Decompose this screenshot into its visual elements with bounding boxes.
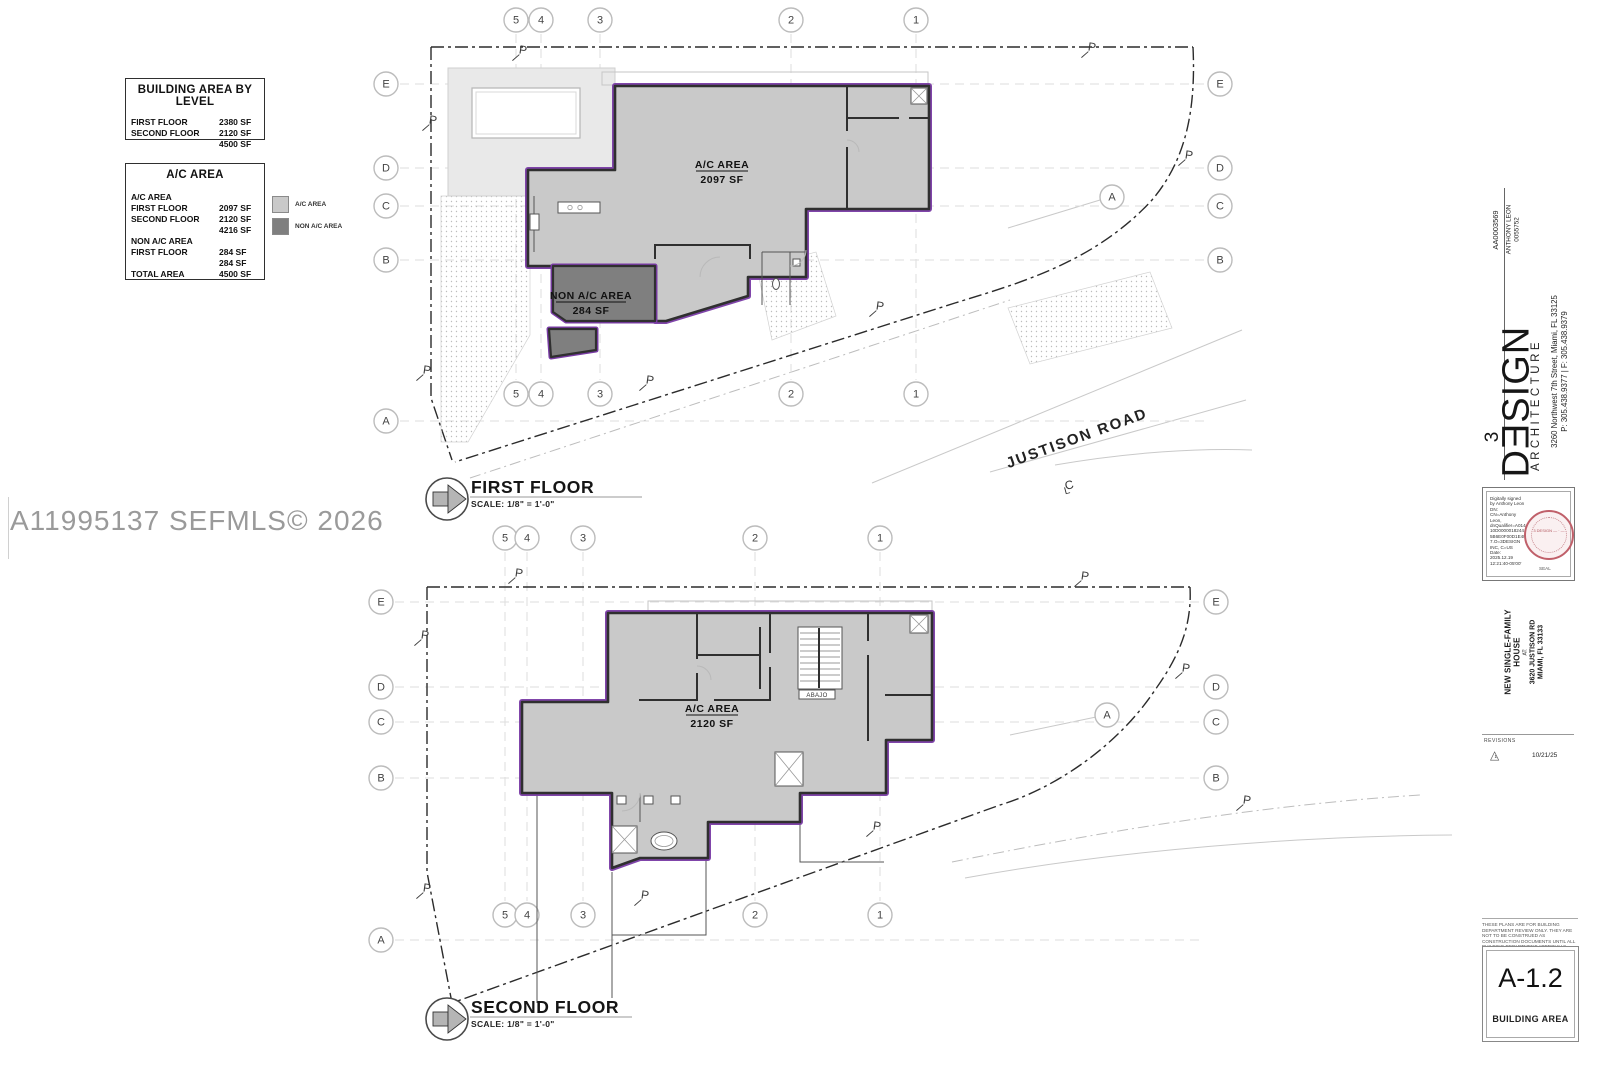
property-line-marker: P (508, 565, 524, 586)
grid-bubble-5: 5 (504, 8, 528, 32)
svg-text:C: C (1212, 717, 1220, 729)
svg-text:5: 5 (502, 533, 508, 545)
firm-license: AA0003569 (1491, 206, 1501, 254)
svg-text:4: 4 (538, 15, 544, 27)
non-ac-area-value: 284 SF (573, 305, 610, 317)
grid-bubble-1: 1 (868, 526, 892, 550)
legend-item: A/C AREA (272, 196, 342, 213)
edge-line (8, 497, 9, 559)
revisions-divider (1482, 734, 1574, 735)
grid-bubble-3: 3 (571, 903, 595, 927)
grid-bubble-D: D (1208, 156, 1232, 180)
firm-address: 3260 Northwest 7th Street, Miami, FL 331… (1550, 284, 1569, 459)
svg-text:P: P (1087, 40, 1097, 55)
area-legend: A/C AREA NON A/C AREA (272, 196, 342, 240)
property-line-marker: P (634, 887, 650, 908)
svg-text:4: 4 (524, 533, 530, 545)
svg-text:5: 5 (513, 15, 519, 27)
property-line-marker: P (1081, 39, 1097, 60)
grid-bubble-B: B (1208, 248, 1232, 272)
ac-area-table: A/C AREA A/C AREA FIRST FLOOR2097 SF SEC… (125, 163, 265, 280)
architect-name: ANTHONY LEON 0055752 (1506, 203, 1521, 257)
svg-text:A: A (1103, 710, 1111, 722)
property-line (427, 587, 452, 1003)
grid-bubble-D: D (1204, 675, 1228, 699)
view-title: FIRST FLOOR (471, 477, 594, 497)
svg-text:3: 3 (597, 15, 603, 27)
ac-area-swatch (272, 196, 289, 213)
svg-text:1: 1 (913, 15, 919, 27)
second-floor-plan: ABAJO A/C AREA 2120 SF (426, 587, 1190, 1040)
svg-text:E: E (377, 597, 384, 609)
second-floor-title: SECOND FLOOR SCALE: 1/8" = 1'-0" (426, 997, 632, 1040)
property-line-marker: P (639, 372, 655, 393)
svg-text:2: 2 (752, 910, 758, 922)
svg-text:P: P (1184, 148, 1194, 163)
grid-bubble-C: C (374, 194, 398, 218)
property-line-marker: P (1236, 792, 1252, 813)
property-line-marker: P (512, 42, 528, 63)
svg-text:5: 5 (513, 389, 519, 401)
grid-bubble-4: 4 (529, 382, 553, 406)
firm-logo-number: 3 (1482, 427, 1502, 447)
table-row: A/C AREA (126, 192, 264, 203)
grid-bubble-A: A (374, 409, 398, 433)
svg-text:3: 3 (580, 533, 586, 545)
revision-date: 10/21/25 (1532, 752, 1557, 759)
first-floor-title: FIRST FLOOR SCALE: 1/8" = 1'-0" (426, 477, 642, 520)
grid-bubble-E: E (1204, 590, 1228, 614)
grid-bubble-3: 3 (588, 382, 612, 406)
svg-text:P: P (1080, 569, 1090, 584)
table-row: 4216 SF (126, 225, 264, 236)
grid-bubble-D: D (374, 156, 398, 180)
property-line-marker: P (1175, 660, 1191, 681)
svg-text:P: P (422, 363, 432, 378)
grid-bubble-B: B (369, 766, 393, 790)
grid-bubble-C: C (369, 710, 393, 734)
grid-bubble-B: B (1204, 766, 1228, 790)
svg-text:P: P (1181, 661, 1191, 676)
grid-bubble-2: 2 (743, 903, 767, 927)
view-scale: SCALE: 1/8" = 1'-0" (471, 499, 555, 509)
svg-text:E: E (1216, 79, 1223, 91)
first-floor-plan: A/C AREA 2097 SF NON A/C AREA 284 SF JUS… (426, 47, 1194, 520)
grid-bubble-2: 2 (779, 382, 803, 406)
grid-bubble-C: C (1204, 710, 1228, 734)
watermark: A11995137 SEFMLS© 2026 (10, 505, 384, 537)
grid-bubble-B: B (374, 248, 398, 272)
table-row: FIRST FLOOR284 SF (126, 247, 264, 258)
svg-text:P: P (420, 628, 430, 643)
grid-bubble-2: 2 (779, 8, 803, 32)
ac-area-value: 2120 SF (690, 718, 733, 730)
grid-bubble-A: A (369, 928, 393, 952)
svg-text:C: C (1216, 201, 1224, 213)
building-area-table: BUILDING AREA BY LEVEL FIRST FLOOR2380 S… (125, 78, 265, 140)
stair-label: ABAJO (806, 693, 827, 699)
svg-text:P: P (1242, 793, 1252, 808)
table-row: SECOND FLOOR2120 SF (126, 214, 264, 225)
svg-text:E: E (382, 79, 389, 91)
grid-bubble-4: 4 (515, 903, 539, 927)
svg-text:D: D (1216, 163, 1224, 175)
non-ac-area-swatch (272, 218, 289, 235)
svg-text:B: B (1216, 255, 1223, 267)
table-title: BUILDING AREA BY LEVEL (126, 84, 264, 108)
ac-area-value: 2097 SF (700, 174, 743, 186)
svg-text:1: 1 (913, 389, 919, 401)
grid-bubble-D: D (369, 675, 393, 699)
svg-text:D: D (377, 682, 385, 694)
revisions-label: REVISIONS (1484, 738, 1516, 744)
svg-text:P: P (872, 819, 882, 834)
svg-text:D: D (382, 163, 390, 175)
svg-text:P: P (518, 43, 528, 58)
ac-area-label: A/C AREA (695, 159, 749, 171)
svg-text:B: B (377, 773, 384, 785)
table-row: SECOND FLOOR2120 SF (126, 128, 264, 139)
svg-text:P: P (875, 299, 885, 314)
firm-logo-subtitle: ARCHITECTURE (1530, 330, 1544, 480)
svg-text:A: A (1108, 192, 1116, 204)
grid-bubble-E: E (1208, 72, 1232, 96)
grid-bubble-A: A (1100, 185, 1124, 209)
table-row: 4500 SF (126, 139, 264, 150)
svg-text:2: 2 (788, 389, 794, 401)
architect-seal-stamp: 3 DESIGN — · — (1524, 510, 1574, 560)
table-row: FIRST FLOOR2097 SF (126, 203, 264, 214)
grid-bubble-1: 1 (904, 382, 928, 406)
table-row: TOTAL AREA4500 SF (126, 269, 264, 280)
table-row: 284 SF (126, 258, 264, 269)
svg-text:3: 3 (597, 389, 603, 401)
grid-bubble-4: 4 (515, 526, 539, 550)
table-title: A/C AREA (126, 169, 264, 181)
grid-bubble-E: E (374, 72, 398, 96)
svg-text:4: 4 (524, 910, 530, 922)
ac-area-label: A/C AREA (685, 703, 739, 715)
svg-text:4: 4 (538, 389, 544, 401)
svg-text:1: 1 (877, 910, 883, 922)
svg-text:E: E (1212, 597, 1219, 609)
svg-text:2: 2 (788, 15, 794, 27)
svg-text:C: C (382, 201, 390, 213)
svg-text:B: B (382, 255, 389, 267)
legend-item: NON A/C AREA (272, 218, 342, 235)
svg-text:B: B (1212, 773, 1219, 785)
view-title: SECOND FLOOR (471, 997, 619, 1017)
grid-bubble-1: 1 (904, 8, 928, 32)
property-line-marker: P (869, 298, 885, 319)
grid-bubble-E: E (369, 590, 393, 614)
grid-bubble-5: 5 (504, 382, 528, 406)
property-line-marker: P (416, 880, 432, 901)
property-line-marker: P (416, 362, 432, 383)
svg-text:1: 1 (877, 533, 883, 545)
plan-sheet: 5544332211EEDDCCBBAA 5544332211EEDDCCBBA… (0, 0, 1600, 1066)
revision-triangle-icon: △ 1 (1490, 748, 1506, 762)
view-scale: SCALE: 1/8" = 1'-0" (471, 1019, 555, 1029)
svg-text:3: 3 (580, 910, 586, 922)
property-line-marker: P (1074, 568, 1090, 589)
table-row: FIRST FLOOR2380 SF (126, 117, 264, 128)
svg-text:P: P (640, 888, 650, 903)
property-line-marker: P (422, 112, 438, 133)
svg-text:D: D (1212, 682, 1220, 694)
grid-bubble-2: 2 (743, 526, 767, 550)
disclaimer-divider (1482, 918, 1578, 919)
grid-bubble-C: C (1208, 194, 1232, 218)
svg-text:P: P (428, 113, 438, 128)
digital-seal: Digitally signed by Anthony Leon DN: CN=… (1482, 487, 1575, 581)
non-ac-area-label: NON A/C AREA (550, 290, 632, 302)
svg-text:P: P (514, 566, 524, 581)
svg-text:C: C (377, 717, 385, 729)
centerline-symbol: C L (1061, 477, 1076, 497)
paver-hatch (1008, 272, 1172, 364)
property-line-marker: P (866, 818, 882, 839)
grid-bubble-3: 3 (571, 526, 595, 550)
project-info: NEW SINGLE-FAMILY HOUSE AT: 3620 JUSTISO… (1504, 595, 1550, 710)
svg-text:5: 5 (502, 910, 508, 922)
sheet-id-box: A-1.2 BUILDING AREA (1482, 946, 1579, 1042)
grid-bubble-3: 3 (588, 8, 612, 32)
svg-text:A: A (382, 416, 390, 428)
grid-bubble-5: 5 (493, 903, 517, 927)
sheet-number: A-1.2 (1483, 963, 1578, 994)
grid-bubble-5: 5 (493, 526, 517, 550)
sheet-title: BUILDING AREA (1483, 1014, 1578, 1024)
table-row: NON A/C AREA (126, 236, 264, 247)
svg-text:A: A (377, 935, 385, 947)
grid-bubble-1: 1 (868, 903, 892, 927)
grid-bubble-A: A (1095, 703, 1119, 727)
svg-text:P: P (645, 373, 655, 388)
grid-bubble-4: 4 (529, 8, 553, 32)
road-label: JUSTISON ROAD (1004, 405, 1150, 472)
svg-text:2: 2 (752, 533, 758, 545)
pool (472, 88, 580, 138)
